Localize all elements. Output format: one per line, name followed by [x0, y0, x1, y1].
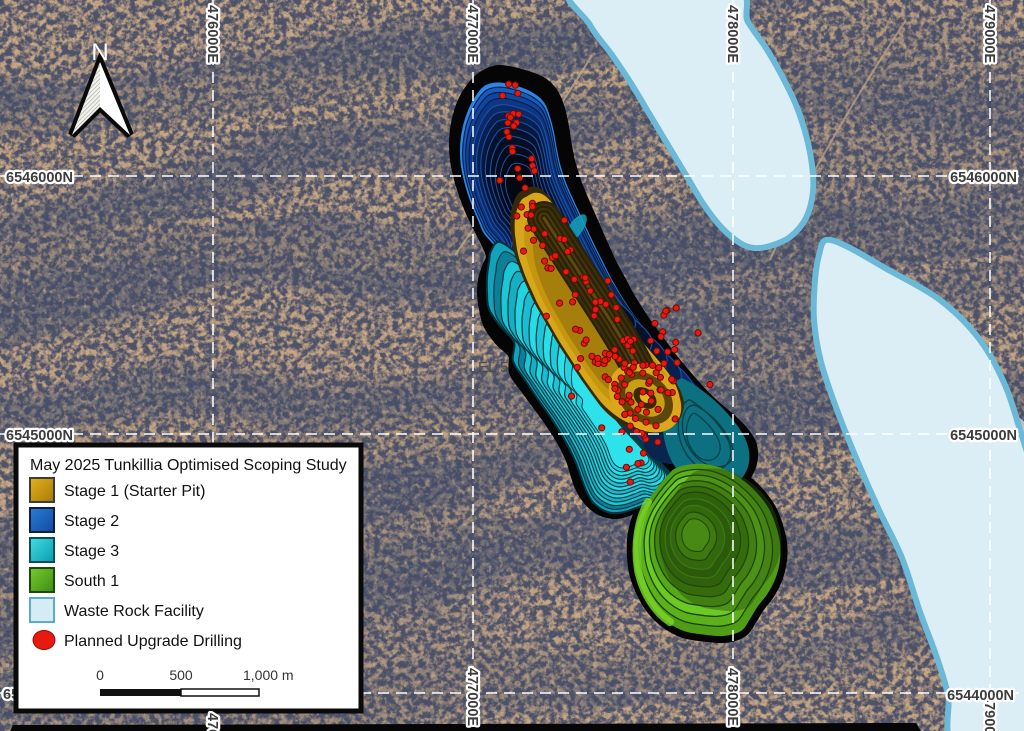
svg-text:478000E: 478000E: [724, 5, 740, 63]
svg-text:1,000 m: 1,000 m: [243, 667, 294, 683]
svg-text:500: 500: [169, 667, 193, 683]
svg-text:Stage 3: Stage 3: [64, 543, 119, 560]
svg-text:N: N: [91, 39, 108, 66]
svg-text:6544000N: 6544000N: [947, 688, 1014, 704]
svg-text:May 2025 Tunkillia Optimised S: May 2025 Tunkillia Optimised Scoping Stu…: [30, 457, 347, 474]
svg-text:478000E: 478000E: [724, 668, 740, 726]
svg-text:477000E: 477000E: [464, 5, 480, 63]
svg-text:Planned Upgrade Drilling: Planned Upgrade Drilling: [64, 633, 242, 650]
svg-text:6546000N: 6546000N: [6, 170, 73, 186]
svg-text:6545000N: 6545000N: [950, 428, 1017, 444]
svg-text:Stage 2: Stage 2: [64, 513, 119, 530]
svg-text:6545000N: 6545000N: [6, 428, 73, 444]
svg-text:Stage 1 (Starter Pit): Stage 1 (Starter Pit): [64, 483, 205, 500]
svg-text:0: 0: [96, 667, 104, 683]
svg-text:6546000N: 6546000N: [950, 170, 1017, 186]
svg-text:479000E: 479000E: [981, 5, 997, 63]
svg-text:476000E: 476000E: [204, 713, 220, 731]
svg-text:South 1: South 1: [64, 573, 119, 590]
svg-text:Waste Rock Facility: Waste Rock Facility: [64, 603, 204, 620]
svg-text:476000E: 476000E: [204, 5, 220, 63]
svg-text:477000E: 477000E: [464, 668, 480, 726]
